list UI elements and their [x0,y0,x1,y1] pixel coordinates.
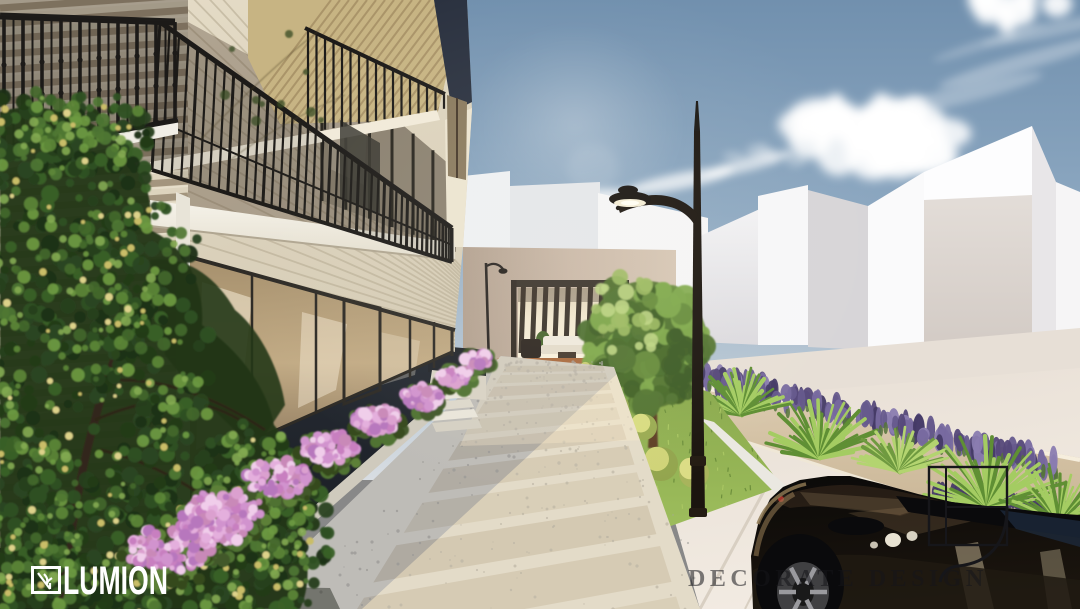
svg-text:LUMION: LUMION [63,559,168,603]
svg-text:DECORATE DESIGN: DECORATE DESIGN [688,566,988,592]
